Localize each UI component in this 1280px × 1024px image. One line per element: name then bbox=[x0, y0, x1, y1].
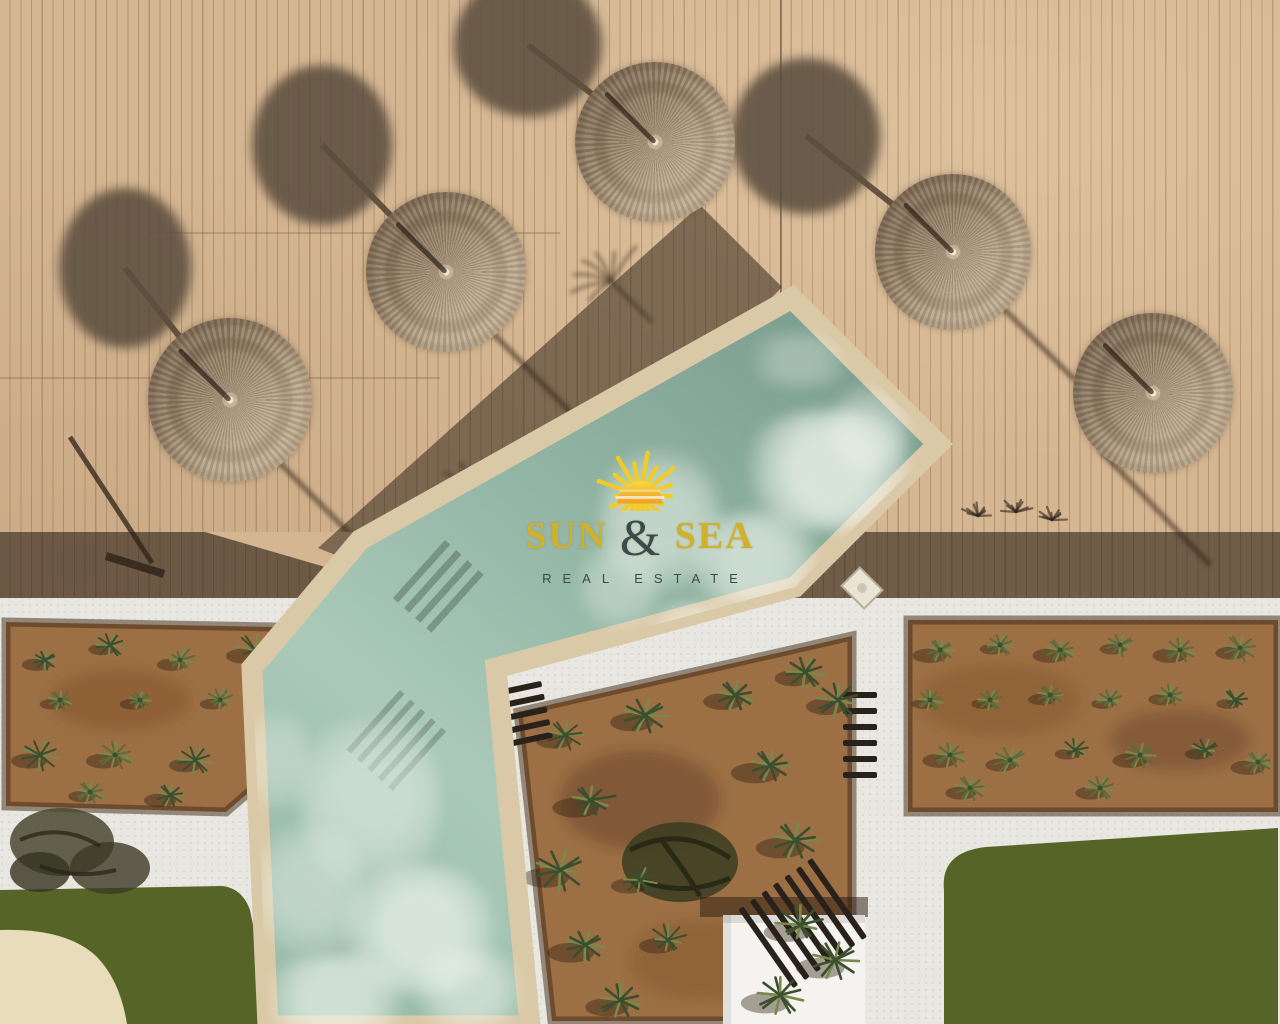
parasol-pole bbox=[1101, 342, 1154, 395]
straw-parasol-4 bbox=[875, 174, 1031, 330]
straw-parasol-5 bbox=[1073, 313, 1233, 473]
brand-sea: SEA bbox=[675, 515, 755, 557]
parasol-pole bbox=[603, 91, 656, 144]
brand-ampersand: & bbox=[620, 510, 662, 567]
sun-icon bbox=[580, 447, 700, 511]
straw-parasol-3 bbox=[575, 62, 735, 222]
brand-subtitle: REAL ESTATE bbox=[498, 571, 782, 586]
parasol-pole bbox=[903, 202, 955, 254]
parasol-pole bbox=[177, 348, 232, 403]
straw-parasol-1 bbox=[148, 318, 312, 482]
parasol-pole bbox=[394, 221, 447, 274]
watermark: SUN & SEA REAL ESTATE bbox=[498, 447, 782, 586]
aerial-pool-photo: SUN & SEA REAL ESTATE bbox=[0, 0, 1280, 1024]
straw-parasol-2 bbox=[366, 192, 526, 352]
brand-sun: SUN bbox=[525, 515, 607, 557]
brand-name: SUN & SEA bbox=[498, 513, 782, 565]
